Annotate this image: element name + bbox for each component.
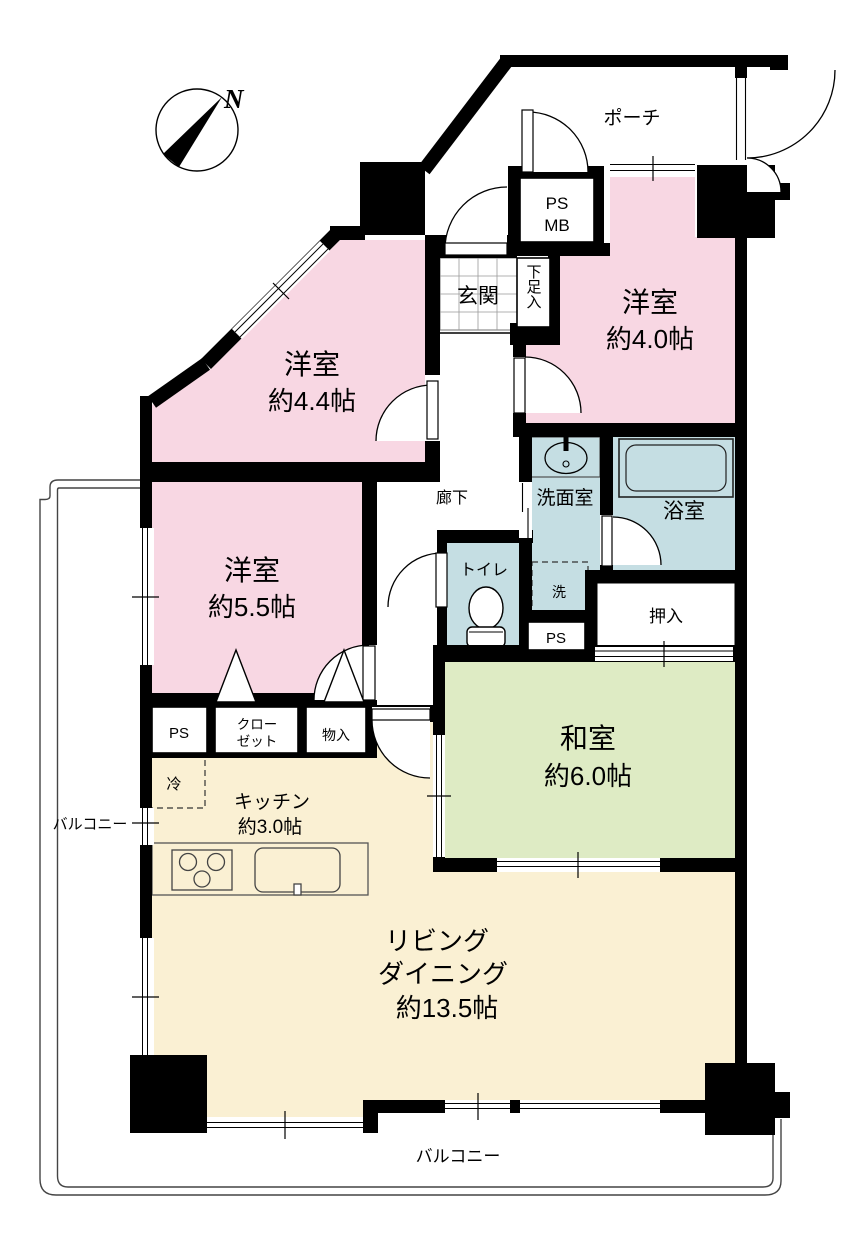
- label-room55-size: 約5.5帖: [208, 592, 296, 622]
- label-living-2: ダイニング: [378, 959, 508, 989]
- label-balcony-bottom: バルコニー: [416, 1147, 501, 1166]
- label-ps-closet: PS: [169, 725, 189, 742]
- label-room44-size: 約4.4帖: [268, 386, 356, 416]
- room-washitsu: [445, 662, 735, 858]
- label-room44-name: 洋室: [284, 349, 340, 380]
- label-storage: 物入: [322, 727, 350, 743]
- label-ps-wash: PS: [546, 630, 566, 647]
- floorplan-svg: N ポーチ PS MB 玄関 下足入 洋室 約4.0帖 洋室 約4.4帖 洋室 …: [0, 0, 846, 1253]
- label-porch: ポーチ: [603, 107, 660, 129]
- label-oshiire: 押入: [649, 607, 683, 626]
- label-laundry: 洗: [552, 584, 566, 600]
- label-toilet: トイレ: [460, 562, 508, 579]
- label-kitchen-name: キッチン: [234, 792, 310, 813]
- floorplan-page: N ポーチ PS MB 玄関 下足入 洋室 約4.0帖 洋室 約4.4帖 洋室 …: [0, 0, 846, 1253]
- label-bath: 浴室: [663, 500, 705, 523]
- compass-icon: N: [156, 84, 245, 171]
- label-closet-1: クロー: [237, 717, 278, 732]
- label-room55-name: 洋室: [224, 555, 280, 586]
- label-psmb-2: MB: [544, 216, 570, 235]
- compass-north-label: N: [223, 84, 245, 114]
- label-closet-2: ゼット: [237, 734, 278, 749]
- label-living-3: 約13.5帖: [396, 993, 499, 1023]
- label-washitsu-size: 約6.0帖: [544, 761, 632, 791]
- label-genkan: 玄関: [457, 285, 499, 308]
- label-psmb-1: PS: [546, 194, 569, 213]
- label-room40-size: 約4.0帖: [606, 324, 694, 354]
- label-balcony-left: バルコニー: [53, 816, 128, 833]
- label-shoebox: 下足入: [525, 264, 542, 309]
- label-room40-name: 洋室: [622, 287, 678, 318]
- label-washitsu-name: 和室: [560, 723, 616, 754]
- toilet-icon: [467, 587, 505, 647]
- label-living-1: リビング: [385, 926, 489, 956]
- label-kitchen-size: 約3.0帖: [238, 816, 302, 838]
- label-fridge: 冷: [166, 776, 181, 793]
- label-washroom: 洗面室: [536, 487, 593, 509]
- label-corridor: 廊下: [436, 489, 468, 507]
